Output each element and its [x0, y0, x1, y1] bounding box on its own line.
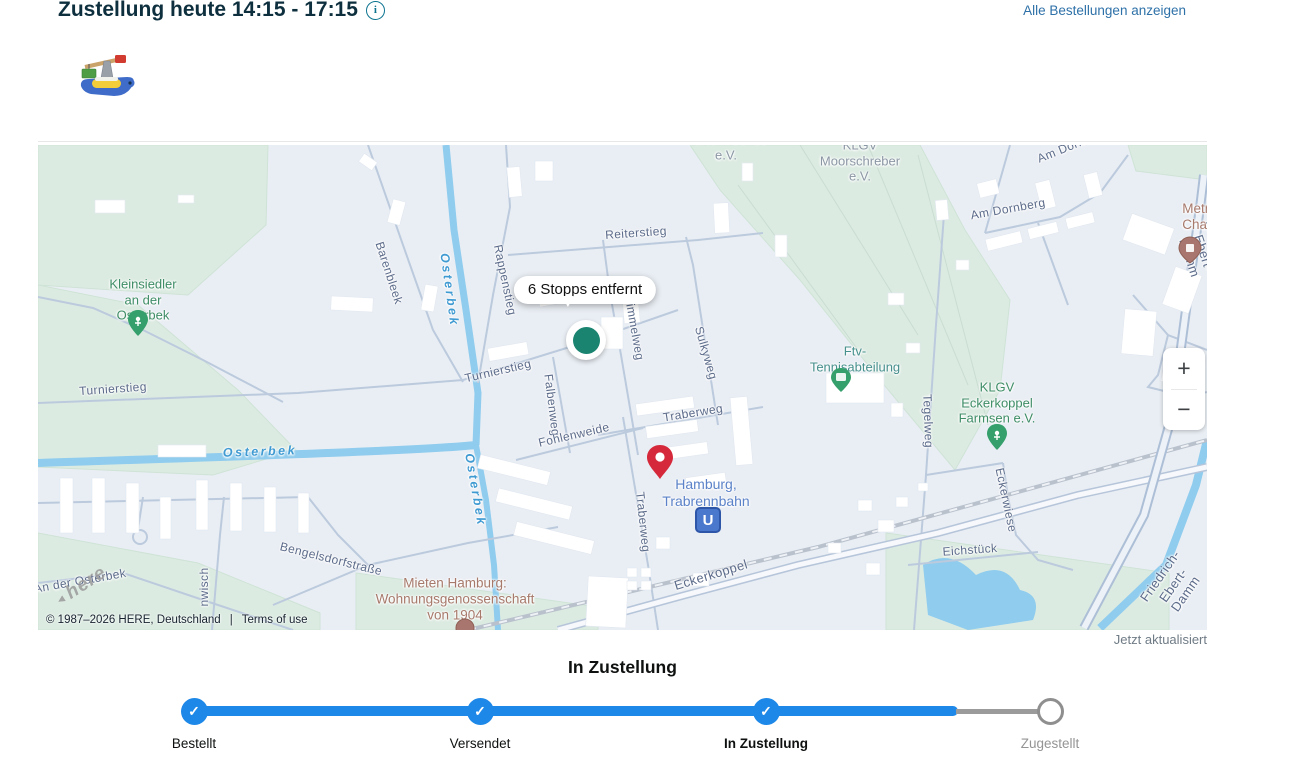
- progress-bar-completed: [194, 706, 958, 716]
- toy-boat-image: [75, 50, 139, 102]
- step-circle-versendet: ✓: [467, 698, 494, 725]
- copyright-text: © 1987–2026 HERE, Deutschland: [46, 614, 221, 626]
- step-label-versendet: Versendet: [400, 736, 560, 751]
- info-icon[interactable]: i: [366, 1, 385, 20]
- check-icon: ✓: [188, 703, 200, 720]
- terms-of-use-link[interactable]: Terms of use: [242, 614, 308, 626]
- step-label-in-zustellung: In Zustellung: [686, 736, 846, 751]
- map-graphics: [38, 145, 1207, 630]
- zoom-in-button[interactable]: +: [1163, 348, 1205, 389]
- map-attribution: © 1987–2026 HERE, Deutschland | Terms of…: [46, 614, 308, 626]
- product-thumbnail[interactable]: [75, 50, 139, 102]
- courier-location-dot: [573, 327, 600, 354]
- delivery-map[interactable]: Gartenfreunde e.V. KLGV Moorschreber e.V…: [38, 145, 1207, 630]
- zoom-out-button[interactable]: −: [1163, 390, 1205, 431]
- attribution-separator: |: [230, 614, 233, 626]
- step-label-zugestellt: Zugestellt: [970, 736, 1130, 751]
- page-title: Zustellung heute 14:15 - 17:15 i: [58, 0, 385, 22]
- view-all-orders-link[interactable]: Alle Bestellungen anzeigen: [1023, 3, 1186, 18]
- last-updated-text: Jetzt aktualisiert: [1114, 632, 1207, 647]
- check-icon: ✓: [474, 703, 486, 720]
- step-circle-in-zustellung: ✓: [753, 698, 780, 725]
- delivery-window-text: Zustellung heute 14:15 - 17:15: [58, 0, 358, 22]
- progress-bar-remaining: [956, 709, 1040, 714]
- step-circle-zugestellt: [1037, 698, 1064, 725]
- step-circle-bestellt: ✓: [181, 698, 208, 725]
- map-zoom-control: + −: [1163, 348, 1205, 430]
- section-divider: [38, 141, 1207, 142]
- shipment-status-title: In Zustellung: [38, 657, 1207, 678]
- check-icon: ✓: [760, 703, 772, 720]
- delivery-tracking-page: Zustellung heute 14:15 - 17:15 i Alle Be…: [0, 0, 1297, 773]
- step-label-bestellt: Bestellt: [114, 736, 274, 751]
- u-bahn-station-icon: U: [695, 507, 721, 533]
- stops-remaining-tooltip: 6 Stopps entfernt: [514, 276, 656, 304]
